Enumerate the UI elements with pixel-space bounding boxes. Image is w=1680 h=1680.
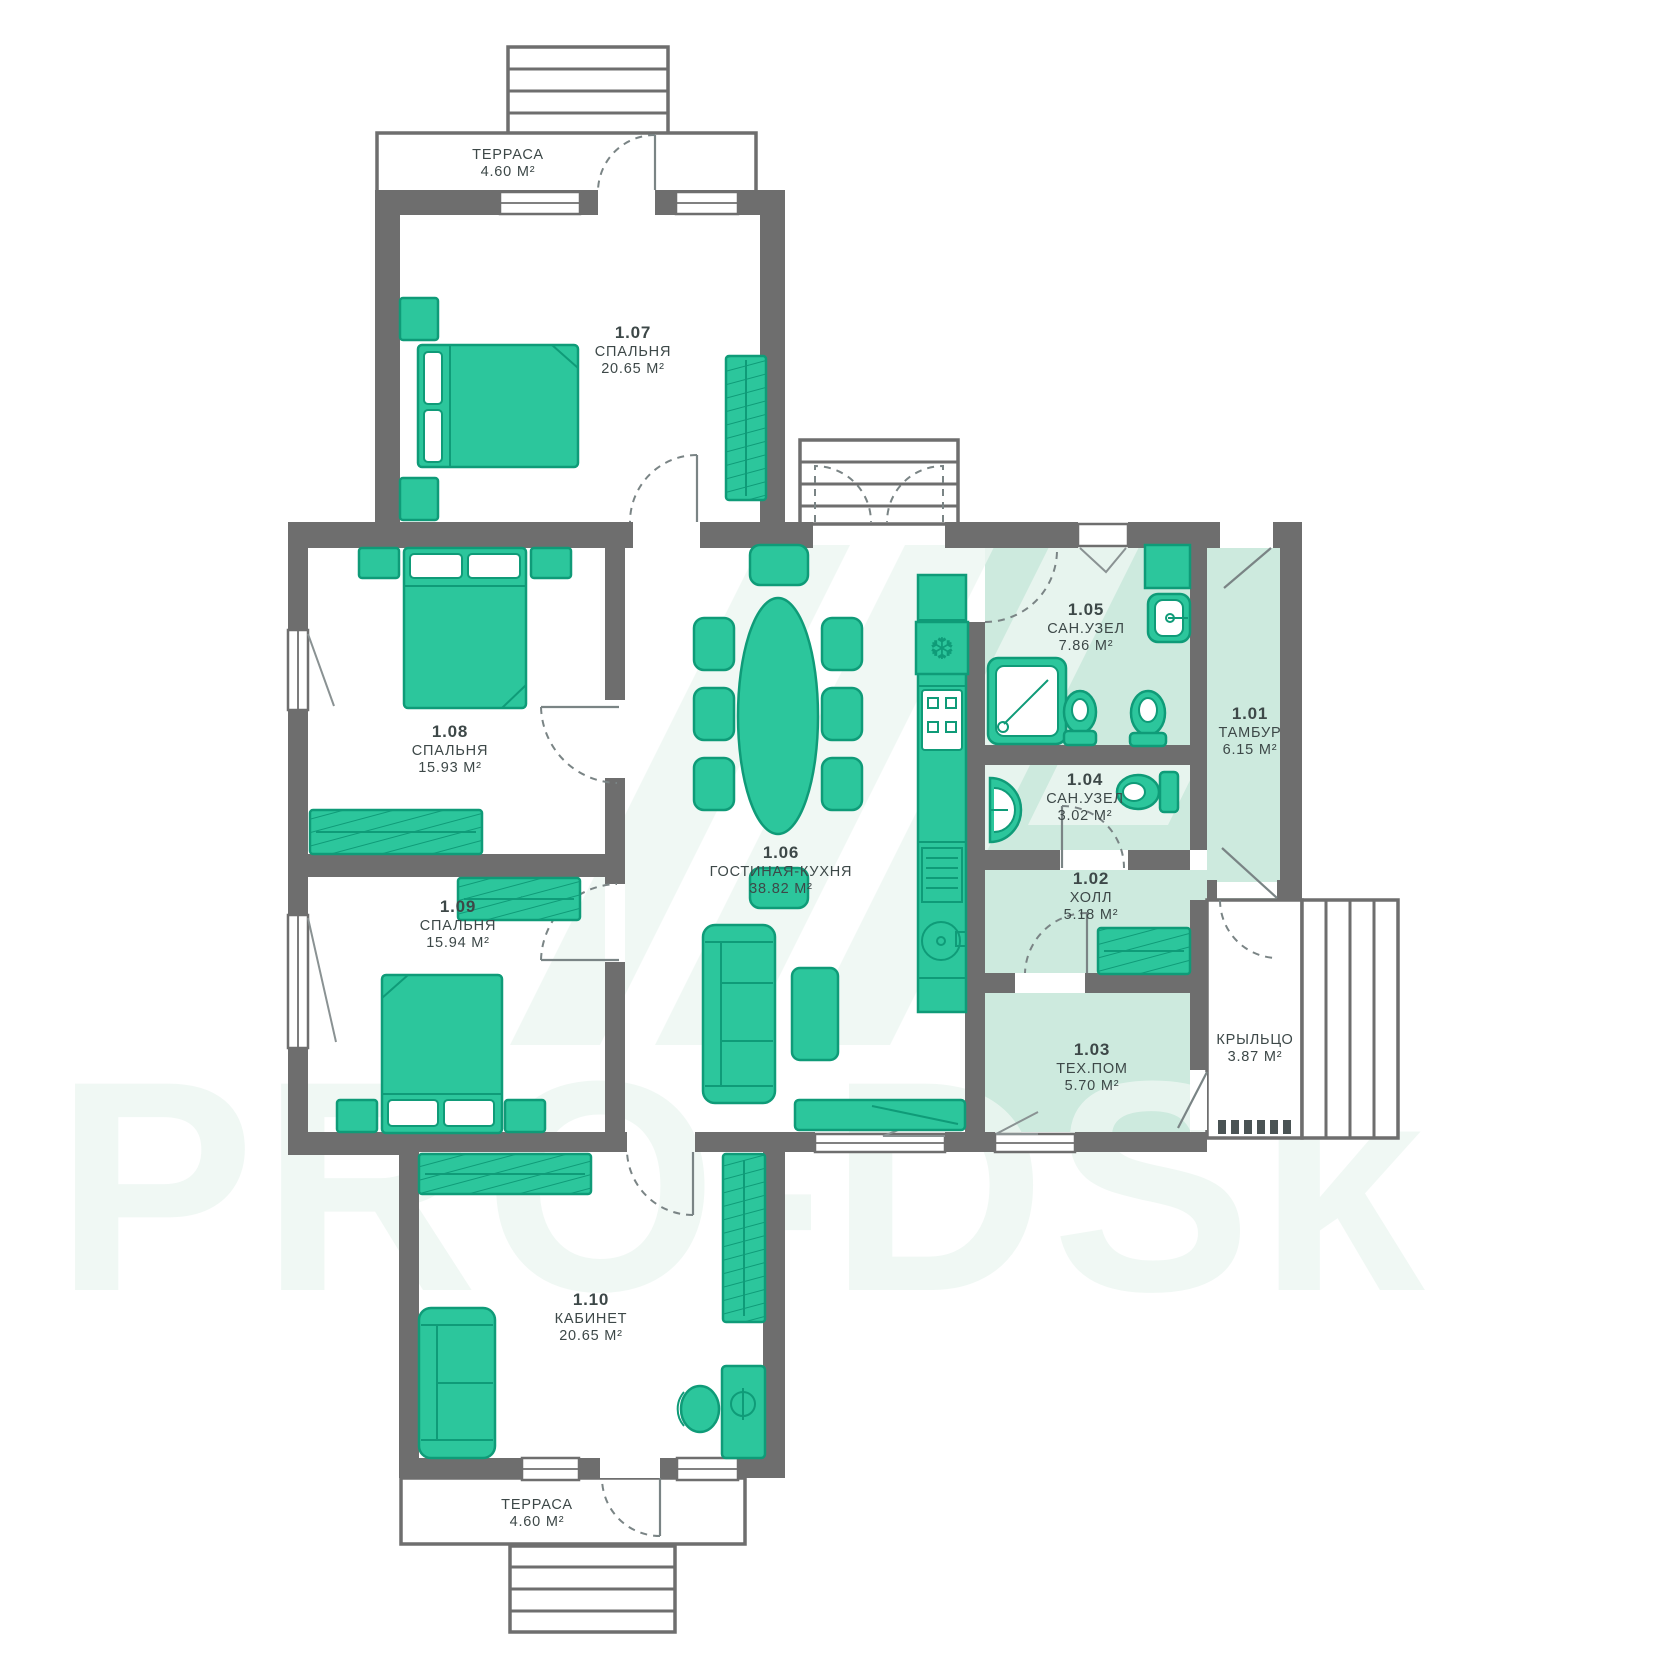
nightstand: [400, 478, 438, 520]
french-door-stoop: [800, 440, 958, 524]
dining-table: [738, 598, 818, 834]
room-label-sanuzel1: 1.05САН.УЗЕЛ7.86 М²: [1047, 600, 1125, 655]
tv-stand: [795, 1100, 965, 1130]
room-label-office: 1.10КАБИНЕТ20.65 М²: [555, 1290, 628, 1345]
bedroom-108-furniture: [310, 548, 571, 854]
nightstand: [337, 1100, 377, 1132]
floor-plan: PRO-DSk: [0, 0, 1680, 1680]
sofa: [703, 925, 775, 1103]
nightstand: [359, 548, 399, 578]
room-label-living: 1.06ГОСТИНАЯ-КУХНЯ38.82 М²: [710, 843, 853, 898]
chair: [694, 758, 734, 810]
chair: [822, 618, 862, 670]
room-label-bedroom3: 1.09СПАЛЬНЯ15.94 М²: [420, 897, 496, 952]
porch: [1207, 900, 1302, 1138]
hall-furniture: [1098, 928, 1190, 974]
room-label-hall: 1.02ХОЛЛ5.18 М²: [1064, 869, 1119, 924]
room-label-tambur: 1.01ТАМБУР6.15 М²: [1219, 704, 1282, 759]
cabinet: [1145, 545, 1190, 588]
room-label-tehpom: 1.03ТЕХ.ПОМ5.70 М²: [1056, 1040, 1128, 1095]
nightstand: [505, 1100, 545, 1132]
desk-chair: [681, 1386, 719, 1432]
floor-plan-drawing: PRO-DSk: [0, 0, 1680, 1680]
room-label-sanuzel2: 1.04САН.УЗЕЛ3.02 М²: [1046, 770, 1124, 825]
nightstand: [400, 298, 438, 340]
nightstand: [531, 548, 571, 578]
terrace-top: [377, 133, 756, 193]
pillow: [424, 410, 442, 462]
chair: [694, 618, 734, 670]
room-label-terrace-bottom: ТЕРРАСА4.60 М²: [501, 1496, 573, 1531]
room-label-bedroom1: 1.07СПАЛЬНЯ20.65 М²: [595, 323, 671, 378]
terrace-bottom: [401, 1478, 745, 1544]
chair: [694, 688, 734, 740]
pillow: [444, 1100, 494, 1126]
room-label-bedroom2: 1.08СПАЛЬНЯ15.93 М²: [412, 722, 488, 777]
room-label-porch: КРЫЛЬЦО3.87 М²: [1216, 1031, 1293, 1066]
chair: [822, 758, 862, 810]
chair: [750, 545, 808, 585]
coffee-table: [792, 968, 838, 1060]
bedroom-107-furniture: [400, 298, 766, 520]
pillow: [410, 554, 462, 578]
toilet: [1160, 772, 1178, 812]
fridge-icon: ❆: [929, 633, 954, 666]
room-label-terrace-top: ТЕРРАСА4.60 М²: [472, 146, 544, 181]
pillow: [424, 352, 442, 404]
pillow: [388, 1100, 438, 1126]
pillow: [468, 554, 520, 578]
chair: [822, 688, 862, 740]
